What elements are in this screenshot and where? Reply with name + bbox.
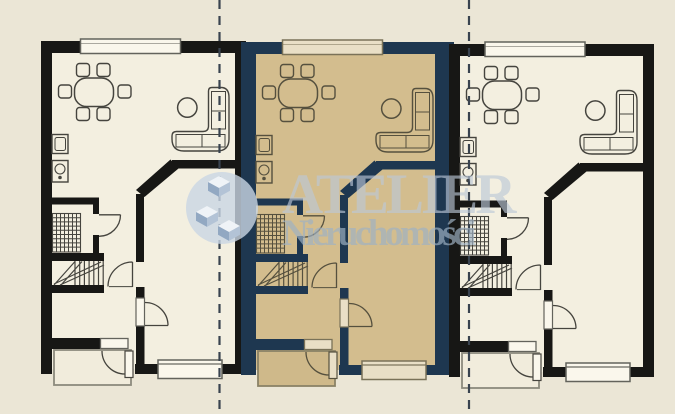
svg-text:Nieruchomości: Nieruchomości [282,213,476,254]
